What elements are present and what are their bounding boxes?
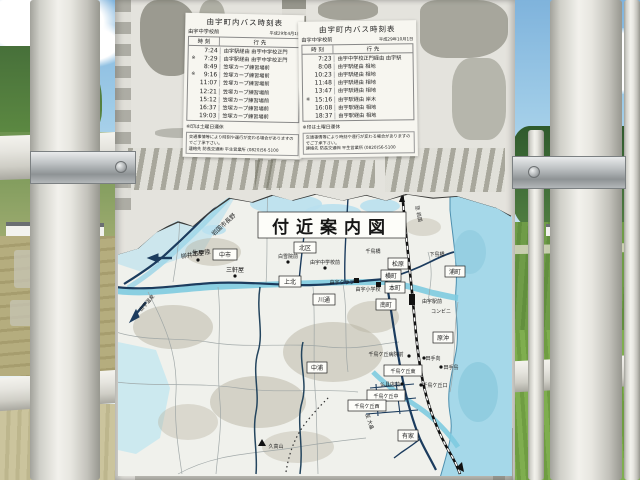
stain [420, 0, 508, 58]
timetable-contact: 連絡先 防長交通㈱ 平生営業所 (0820)56-5100 [189, 145, 296, 153]
station-marker [409, 294, 415, 305]
timetable-sheet-left: 由宇町内バス時刻表 由宇中学校前 平成29年4月1日 時 刻 行 先 7:24由… [183, 13, 305, 159]
far-right-post [624, 0, 640, 480]
map-label: 由宇駅前 [422, 298, 442, 305]
table-row: 18:37由宇駅経由 相地 [303, 111, 413, 121]
map-label: コンビニ [431, 308, 451, 315]
stain [318, 0, 378, 20]
map-label: 川通 [318, 296, 330, 304]
timetable-date: 平成29年4月1日 [269, 31, 301, 38]
left-post [30, 0, 100, 480]
timetable-table: 時 刻 行 先 7:24由宇駅経由 由宇中学校正門 ※7:29由宇駅経由 由宇中… [186, 36, 301, 123]
map-label: 久高山 [268, 443, 283, 450]
timetable-table: 時 刻 行 先 7:23由宇中学校正門経由 由宇駅 8:08由宇駅経由 相地 1… [301, 43, 414, 121]
map-label: 中浦 [311, 364, 323, 372]
timetable-note: ※印は土曜日運休 [186, 122, 299, 131]
map-label: 有家 [402, 432, 414, 440]
map-label: 田手向 [425, 355, 440, 362]
timetable-title: 由宇町内バス時刻表 [301, 23, 413, 36]
timetable-sheet-right: 由宇町内バス時刻表 由宇中学校前 平成29年10月1日 時 刻 行 先 7:23… [298, 20, 418, 158]
map-label: 白雪院前 [278, 253, 298, 260]
timetable-footer: 交通事情等により時刻や運行が変わる場合がありますのでご了承下さい。 連絡先 防長… [303, 131, 415, 155]
photo-of-bus-sign: 由宇町内バス時刻表 由宇中学校前 平成29年4月1日 時 刻 行 先 7:24由… [0, 0, 640, 480]
map-label: 松原 [392, 260, 404, 268]
map-label: 千鳥ケ丘東 [390, 368, 415, 375]
timetable-date: 平成29年10月1日 [379, 36, 413, 42]
map-label: 千鳥ケ丘西 [354, 403, 379, 410]
table-row: 19:03笠塚カープ練習場前 [187, 111, 298, 122]
map-label: 本町 [389, 284, 401, 292]
map-label: 由宇クラブ [329, 279, 354, 286]
map-label: 中市 [219, 251, 231, 259]
map-label: 南町 [380, 301, 392, 309]
map-label: 下島橋 [429, 251, 444, 258]
map-label: 原沖 [437, 334, 449, 342]
map-label: 由宇中学校前 [310, 259, 340, 266]
col-dest: 行 先 [333, 44, 412, 53]
map-label: 千鳥ケ丘口 [422, 382, 447, 389]
col-dest: 行 先 [220, 37, 300, 47]
map-label: 浦町 [449, 268, 461, 276]
area-map: 付近案内図 岩国市長野 柳井市伊陸 生屋 中市 三軒屋 北区 白雪院前 由宇中学… [118, 192, 512, 476]
right-clamp-bolt [528, 166, 540, 178]
map-title: 付近案内図 [272, 217, 392, 238]
map-label: 上北 [284, 278, 296, 286]
map-label: 三軒屋 [226, 266, 244, 274]
tape-residue [255, 160, 375, 188]
map-label: 千鳥橋 [365, 248, 380, 255]
map-label: 由宇小学校 [355, 286, 380, 293]
col-time: 時 刻 [189, 37, 220, 46]
map-label: 田手島 [443, 364, 458, 371]
timetable-footer: 交通事情等により時刻や運行が変わる場合がありますのでご了承下さい。 連絡先 防長… [186, 131, 299, 155]
col-time: 時 刻 [302, 45, 333, 53]
map-label: 千鳥ケ丘病院前 [368, 351, 403, 358]
map-label: 仏具店前 [380, 381, 400, 388]
timetable-stop-name: 由宇中学校前 [188, 28, 219, 36]
left-clamp-bolt [115, 161, 127, 173]
timetable-contact: 連絡先 防長交通㈱ 平生営業所 (0820)56-5100 [306, 145, 412, 152]
map-label: 生屋 [192, 249, 204, 257]
stain [452, 58, 506, 140]
timetable-stop-name: 由宇中学校前 [301, 36, 332, 43]
timetable-note: ※印は土曜日運休 [302, 122, 414, 131]
right-post [550, 0, 622, 480]
map-label: 横町 [385, 272, 397, 280]
map-label: 千鳥ケ丘中 [373, 393, 398, 400]
map-label: 北区 [299, 244, 311, 252]
